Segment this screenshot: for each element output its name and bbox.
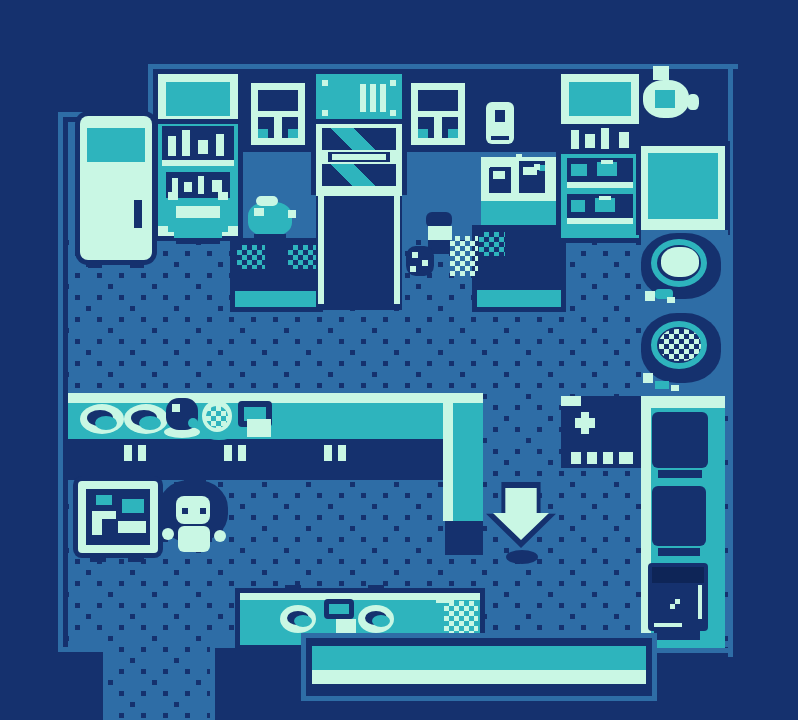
spill [645, 291, 655, 301]
bottle [182, 130, 190, 156]
window-dark [411, 83, 465, 145]
pillar-edge [443, 403, 453, 521]
pillar-cap [443, 393, 483, 403]
safe-dial [670, 599, 680, 609]
bottle [601, 128, 609, 150]
case-item [96, 495, 112, 505]
chair-shadow [176, 238, 220, 244]
chair-seat [174, 220, 222, 238]
roast-shine [172, 404, 180, 412]
customer-hand [214, 530, 226, 542]
jar-label [495, 110, 505, 122]
jar-base [491, 136, 509, 140]
sink-front [481, 201, 561, 225]
window-sill [258, 129, 268, 138]
counter-island-right [477, 230, 561, 307]
food [294, 615, 312, 627]
machine-dial [581, 412, 589, 434]
scene-objects [0, 0, 798, 720]
jar [486, 102, 514, 144]
window-mullion [274, 113, 282, 138]
spill [643, 373, 653, 383]
bun-shadow [206, 432, 232, 440]
safe-handle [698, 585, 702, 619]
bottle [168, 136, 176, 156]
case-foot [90, 553, 106, 562]
roast-garnish [188, 418, 198, 428]
cook-face [428, 226, 452, 240]
roast-dish [164, 398, 204, 440]
counter-pillar [443, 393, 483, 557]
chair-back [176, 206, 220, 218]
customer-body [178, 526, 210, 552]
chair-post-cap [168, 192, 178, 200]
napkin [336, 619, 356, 633]
counter-handle [138, 445, 146, 461]
booth-base [658, 470, 702, 478]
hood-vent-slat [360, 84, 366, 112]
steam-dither [450, 236, 478, 276]
range-hood [316, 74, 402, 122]
bottle-shelf-right [561, 124, 639, 154]
shelf-board [567, 218, 633, 224]
pot-base [254, 234, 286, 240]
cabinet-top-edge [316, 190, 402, 196]
food [95, 416, 117, 430]
bench-seat [312, 646, 646, 670]
customer-hand [162, 528, 174, 540]
counter-handle [124, 445, 132, 461]
chair [168, 190, 228, 244]
fridge-handle [134, 200, 142, 228]
safe-edge [654, 623, 682, 627]
door-right[interactable] [641, 146, 725, 230]
cabinet-edge [394, 196, 400, 304]
counter-front [477, 290, 561, 307]
customer-hair-tuft [184, 478, 206, 490]
bottle [571, 130, 579, 150]
spill [655, 381, 669, 389]
game-screen [0, 0, 798, 720]
window-glass [166, 82, 230, 116]
hood-screw [322, 80, 328, 86]
hood-vent-slat [380, 84, 386, 112]
counter-island-left [235, 243, 318, 307]
fridge-foot [130, 260, 144, 268]
booth-top [652, 486, 706, 546]
safe-top-band [652, 567, 704, 583]
dish [595, 198, 615, 212]
oven [316, 124, 402, 190]
arrow-shadow [506, 550, 538, 564]
pillar-face [453, 403, 483, 521]
window-sill [448, 129, 458, 138]
safe[interactable] [648, 563, 710, 640]
pot-highlight [254, 208, 264, 216]
counter-handle [338, 445, 346, 461]
booth-top [652, 412, 708, 468]
sparkle-dot [534, 164, 540, 170]
sack [406, 242, 438, 278]
counter-dither [288, 245, 316, 269]
pot-lid [256, 196, 278, 206]
counter-front [235, 291, 318, 307]
pot-on-counter [246, 196, 296, 242]
bottle [585, 134, 595, 148]
oven-window-shine [322, 164, 396, 186]
hood-screw [390, 110, 396, 116]
bench-trim [312, 670, 646, 684]
machine-grill-gap [613, 452, 619, 464]
sack-speck [422, 260, 428, 266]
window-mullion [434, 113, 442, 138]
wall-lamp [643, 66, 699, 122]
dish [571, 200, 585, 212]
npc-customer[interactable] [158, 478, 230, 556]
case-tray [118, 521, 146, 533]
hood-screw [390, 80, 396, 86]
dish-shelf-right [561, 154, 639, 238]
table-dither [444, 601, 478, 639]
case-shelf [92, 511, 116, 519]
customer-eye [182, 508, 188, 514]
spill [667, 297, 675, 303]
machine-notch [561, 396, 581, 406]
display-case [78, 481, 158, 553]
shelf-board [567, 182, 633, 188]
case-shelf [92, 519, 102, 535]
kitchen-machine [561, 396, 641, 468]
booth-table[interactable] [652, 412, 710, 478]
hood-screw [322, 110, 328, 116]
window-sill [418, 129, 428, 138]
dither-patch [450, 236, 478, 276]
sparkles [476, 150, 546, 180]
napkin [247, 419, 271, 437]
fridge-foot [88, 260, 102, 268]
refrigerator [80, 116, 152, 260]
window-left [158, 74, 238, 124]
sack-speck [412, 252, 418, 258]
dish-lid [601, 160, 613, 164]
chair-post-cap [218, 192, 228, 200]
pot-handle [288, 210, 296, 218]
oven-window-shine [322, 128, 396, 150]
dish [571, 164, 587, 176]
cauldron [641, 233, 723, 307]
counter-handle [324, 445, 332, 461]
pillar-base [445, 521, 483, 555]
dish [597, 162, 617, 176]
safe-base [654, 631, 700, 640]
lamp-bump [687, 94, 699, 110]
cauldron-stew [659, 329, 701, 361]
counter-handle [224, 445, 232, 461]
cauldron-dough [661, 247, 699, 277]
oven-handle [332, 154, 386, 160]
fridge-freezer-door [87, 128, 145, 162]
booth-base [658, 548, 700, 556]
door-panel [648, 153, 718, 219]
sparkle-dot [516, 154, 522, 160]
counter-dither [237, 245, 265, 269]
spill [671, 385, 679, 391]
dish-lid [599, 196, 611, 200]
cabinet-edge [318, 196, 324, 304]
booth-table[interactable] [652, 486, 708, 556]
bench [306, 638, 652, 696]
bottle [216, 134, 224, 156]
lamp-center [655, 90, 675, 108]
machine-grill-gap [597, 452, 603, 464]
sparkle-dot [482, 160, 490, 168]
food [139, 416, 161, 430]
stove-cabinet [316, 190, 402, 310]
bottle [198, 140, 208, 154]
plate-of-food [80, 402, 128, 438]
food [372, 615, 390, 627]
case-foot [128, 553, 144, 562]
sack-speck [410, 266, 416, 272]
window-dark [251, 83, 305, 145]
bun-swirl [206, 406, 228, 428]
bottle [619, 132, 629, 148]
menu-tray [324, 599, 354, 619]
case-item [122, 499, 144, 513]
cauldron [641, 313, 723, 395]
machine-grill-gap [581, 452, 587, 464]
customer-eye [200, 508, 206, 514]
window-right [561, 74, 639, 124]
swirl-bun [202, 398, 236, 440]
window-glass [569, 82, 631, 116]
counter-handle [238, 445, 246, 461]
lamp-stem [653, 66, 669, 80]
shelf-board [162, 160, 234, 166]
window-sill [288, 129, 298, 138]
hood-vent-slat [370, 84, 376, 112]
quest-arrow[interactable] [486, 482, 558, 564]
counter-dither [479, 232, 505, 256]
